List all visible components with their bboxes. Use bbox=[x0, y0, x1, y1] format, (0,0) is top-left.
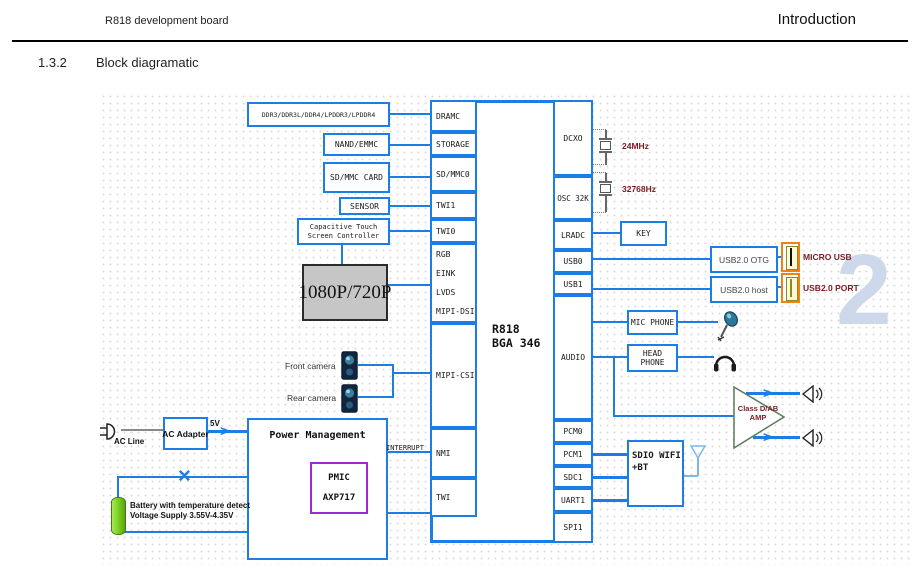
pmic-box: PMIC AXP717 bbox=[310, 462, 368, 514]
wire-mic-b bbox=[678, 321, 718, 323]
port-mipi-csi: MIPI-CSI bbox=[430, 323, 477, 428]
chip-title: R818 BGA 346 bbox=[492, 322, 540, 350]
header-left: R818 development board bbox=[105, 15, 229, 27]
rear-camera-icon bbox=[341, 384, 358, 413]
port-pcm0: PCM0 bbox=[553, 420, 593, 443]
wire-mic-a bbox=[593, 321, 627, 323]
sdio-line2: +BT bbox=[632, 462, 648, 474]
wire-head-a bbox=[593, 356, 627, 358]
wire-ac-cord bbox=[121, 429, 165, 431]
micro-usb-connector-icon bbox=[781, 242, 800, 272]
usb-port-connector-icon bbox=[781, 273, 800, 303]
arrow-amp-top: > bbox=[763, 386, 772, 401]
port-eink: EINK bbox=[436, 269, 455, 278]
usb-port-label: USB2.0 PORT bbox=[803, 283, 859, 293]
sdio-line1: SDIO WIFI bbox=[632, 450, 681, 462]
chip-title-line1: R818 bbox=[492, 322, 540, 336]
wire-touch-display bbox=[341, 245, 343, 264]
wire-uart1 bbox=[593, 499, 627, 502]
port-dramc: DRAMC bbox=[430, 100, 477, 132]
microphone-icon bbox=[716, 310, 742, 344]
port-spi1: SPI1 bbox=[553, 512, 593, 543]
crystal-24mhz-lead2 bbox=[605, 153, 607, 165]
wire-sdc1 bbox=[593, 476, 627, 479]
speaker-icon-top bbox=[800, 385, 824, 403]
crystal-24mhz-stub-top bbox=[592, 129, 606, 130]
crystal-32k-stub-bot bbox=[592, 212, 606, 213]
header-right: Introduction bbox=[778, 11, 856, 28]
wire-sdcard bbox=[390, 176, 430, 178]
section-number: 1.3.2 bbox=[38, 55, 67, 70]
wire-camera-join bbox=[392, 364, 394, 398]
crystal-24mhz-body bbox=[600, 141, 611, 150]
port-display-group: RGB EINK LVDS MIPI-DSI bbox=[430, 243, 477, 323]
ddr-box: DDR3/DDR3L/DDR4/LPDDR3/LPDDR4 bbox=[247, 102, 390, 127]
antenna-lead-v bbox=[697, 458, 699, 476]
usb-otg-box: USB2.0 OTG bbox=[710, 246, 778, 273]
port-mipi-dsi: MIPI-DSI bbox=[436, 307, 475, 316]
battery-disconnect-x: × bbox=[178, 465, 191, 487]
port-storage: STORAGE bbox=[430, 132, 477, 156]
port-twi1: TWI1 bbox=[430, 192, 477, 219]
port-twi: TWI bbox=[430, 478, 477, 517]
wire-display bbox=[388, 284, 430, 286]
wire-key bbox=[593, 232, 620, 234]
wire-sensor bbox=[390, 205, 430, 207]
front-camera-label: Front camera bbox=[285, 361, 336, 371]
antenna-lead-h bbox=[684, 475, 698, 477]
crystal-24mhz-cap1 bbox=[599, 138, 612, 140]
wire-battery-riser bbox=[117, 477, 119, 499]
battery-icon bbox=[111, 497, 126, 535]
port-dcxo: DCXO bbox=[553, 100, 593, 176]
port-nmi: NMI bbox=[430, 428, 477, 478]
sdio-wifi-box: SDIO WIFI +BT bbox=[627, 440, 684, 507]
sdcard-box: SD/MMC CARD bbox=[323, 162, 390, 193]
amp-label-line1: Class D/AB bbox=[736, 404, 780, 413]
key-box: KEY bbox=[620, 221, 667, 246]
mic-phone-box: MIC PHONE bbox=[627, 310, 678, 335]
battery-label: Battery with temperature detect Voltage … bbox=[130, 501, 250, 520]
arrow-5v: > bbox=[220, 424, 229, 439]
ac-line-label: AC Line bbox=[114, 437, 144, 446]
port-sdc1: SDC1 bbox=[553, 466, 593, 488]
port-audio: AUDIO bbox=[553, 295, 593, 420]
wire-nand bbox=[390, 144, 430, 146]
battery-label-line2: Voltage Supply 3.55V-4.35V bbox=[130, 511, 250, 521]
crystal-32k-lead2 bbox=[605, 196, 607, 212]
crystal-32k-label: 32768Hz bbox=[622, 184, 656, 194]
antenna-icon bbox=[690, 445, 707, 460]
touch-line1: Capacitive Touch bbox=[310, 223, 377, 232]
interrupt-label: INTERRUPT bbox=[386, 444, 424, 452]
crystal-32k-stub-top bbox=[592, 172, 606, 173]
wire-usb1 bbox=[593, 288, 710, 290]
front-camera-icon bbox=[341, 351, 358, 380]
speaker-icon-bottom bbox=[800, 429, 824, 447]
amp-label-line2: AMP bbox=[736, 413, 780, 422]
header-rule bbox=[12, 40, 908, 42]
sensor-box: SENSOR bbox=[339, 197, 390, 215]
wire-battery-bottom bbox=[117, 531, 247, 533]
pmic-label: PMIC bbox=[328, 473, 350, 483]
port-usb1: USB1 bbox=[553, 273, 593, 295]
wire-amp-in bbox=[613, 415, 735, 417]
port-sdmmc0: SD/MMC0 bbox=[430, 156, 477, 192]
crystal-32k-body bbox=[600, 184, 611, 193]
port-usb0: USB0 bbox=[553, 250, 593, 273]
nand-box: NAND/EMMC bbox=[323, 133, 390, 156]
wire-amp-branch bbox=[613, 356, 615, 417]
wire-mipi-csi bbox=[392, 372, 430, 374]
wire-front-camera bbox=[358, 364, 394, 366]
port-twi0: TWI0 bbox=[430, 219, 477, 243]
rear-camera-label: Rear camera bbox=[287, 393, 336, 403]
pmic-part-number: AXP717 bbox=[323, 493, 356, 503]
arrow-amp-bot: > bbox=[763, 430, 772, 445]
wire-ddr bbox=[390, 113, 430, 115]
chip-title-line2: BGA 346 bbox=[492, 336, 540, 350]
crystal-32k-lead1 bbox=[605, 173, 607, 181]
amp-label: Class D/AB AMP bbox=[736, 404, 780, 422]
battery-label-line1: Battery with temperature detect bbox=[130, 501, 250, 511]
wire-pm-twi bbox=[388, 512, 430, 514]
wire-usb0 bbox=[593, 258, 710, 260]
crystal-24mhz-stub-bot bbox=[592, 164, 606, 165]
port-lvds: LVDS bbox=[436, 288, 455, 297]
wire-pcm1 bbox=[593, 453, 627, 456]
ac-adapter-box: AC Adapter bbox=[163, 417, 208, 450]
port-osc32k: OSC 32K bbox=[553, 176, 593, 220]
wire-rear-camera bbox=[358, 396, 394, 398]
crystal-32k-cap1 bbox=[599, 181, 612, 183]
head-phone-box: HEAD PHONE bbox=[627, 344, 678, 372]
touch-line2: Screen Controller bbox=[308, 232, 380, 241]
v5-label: 5V bbox=[210, 419, 220, 428]
port-pcm1: PCM1 bbox=[553, 443, 593, 466]
usb-host-box: USB2.0 host bbox=[710, 276, 778, 303]
port-uart1: UART1 bbox=[553, 488, 593, 512]
headphone-icon bbox=[712, 348, 738, 374]
port-lradc: LRADC bbox=[553, 220, 593, 250]
wire-head-b bbox=[678, 356, 714, 358]
display-box: 1080P/720P bbox=[302, 264, 388, 321]
wire-touch bbox=[390, 230, 430, 232]
crystal-24mhz-label: 24MHz bbox=[622, 141, 649, 151]
document-page: R818 development board Introduction 1.3.… bbox=[0, 0, 920, 568]
port-rgb: RGB bbox=[436, 250, 450, 259]
touch-box: Capacitive Touch Screen Controller bbox=[297, 218, 390, 245]
section-title: Block diagramatic bbox=[96, 55, 199, 70]
power-mgmt-title: Power Management bbox=[247, 430, 388, 441]
micro-usb-label: MICRO USB bbox=[803, 252, 852, 262]
